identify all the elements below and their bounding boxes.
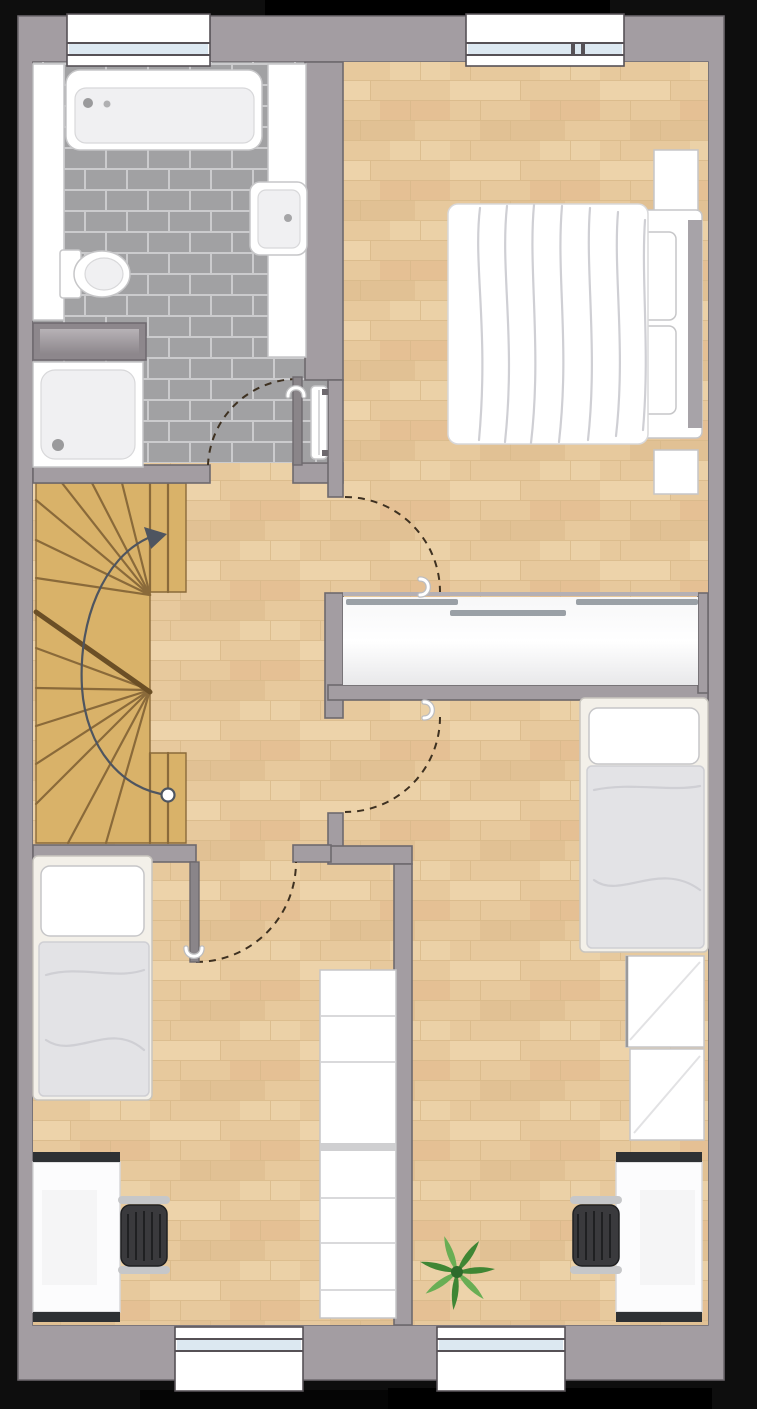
shower-drain-icon (52, 439, 64, 451)
window-top-left (67, 14, 210, 66)
single-bed-left (33, 856, 152, 1100)
desk-right (616, 1152, 702, 1322)
towel-radiator (311, 386, 328, 459)
stair-start-marker (162, 789, 175, 802)
office-chair-left (118, 1196, 170, 1274)
washbasin (250, 182, 307, 255)
window-top-right (466, 14, 624, 66)
bathtub-faucet-icon (83, 98, 93, 108)
single-bed-right (580, 698, 708, 952)
washbasin-faucet-icon (284, 214, 292, 222)
window-bottom-right (437, 1327, 565, 1391)
bathtub-drain-icon (104, 101, 111, 108)
desk-left (33, 1152, 120, 1322)
plant-core (451, 1266, 463, 1278)
wall-cabinet (33, 323, 146, 360)
bathtub (66, 70, 262, 150)
shelf-unit (320, 970, 396, 1318)
floor-plan-page (0, 0, 757, 1409)
window-bottom-left (175, 1327, 303, 1391)
toilet (60, 250, 130, 298)
office-chair-right (570, 1196, 622, 1274)
closet-front-line (343, 592, 698, 596)
duvet (39, 942, 149, 1096)
nightstand-top (654, 150, 698, 213)
window-mullion (571, 42, 575, 56)
headboard (688, 220, 702, 428)
nightstand-bottom (654, 450, 698, 494)
window-mullion (581, 42, 585, 56)
sliding-door-closet (343, 592, 698, 685)
room-bottom-left-door-leaf (190, 862, 199, 962)
double-bed (448, 204, 702, 444)
floor-plan (0, 0, 757, 1409)
pillow (589, 708, 699, 764)
duvet (587, 766, 704, 948)
pillow (41, 866, 144, 936)
shower (33, 362, 143, 467)
